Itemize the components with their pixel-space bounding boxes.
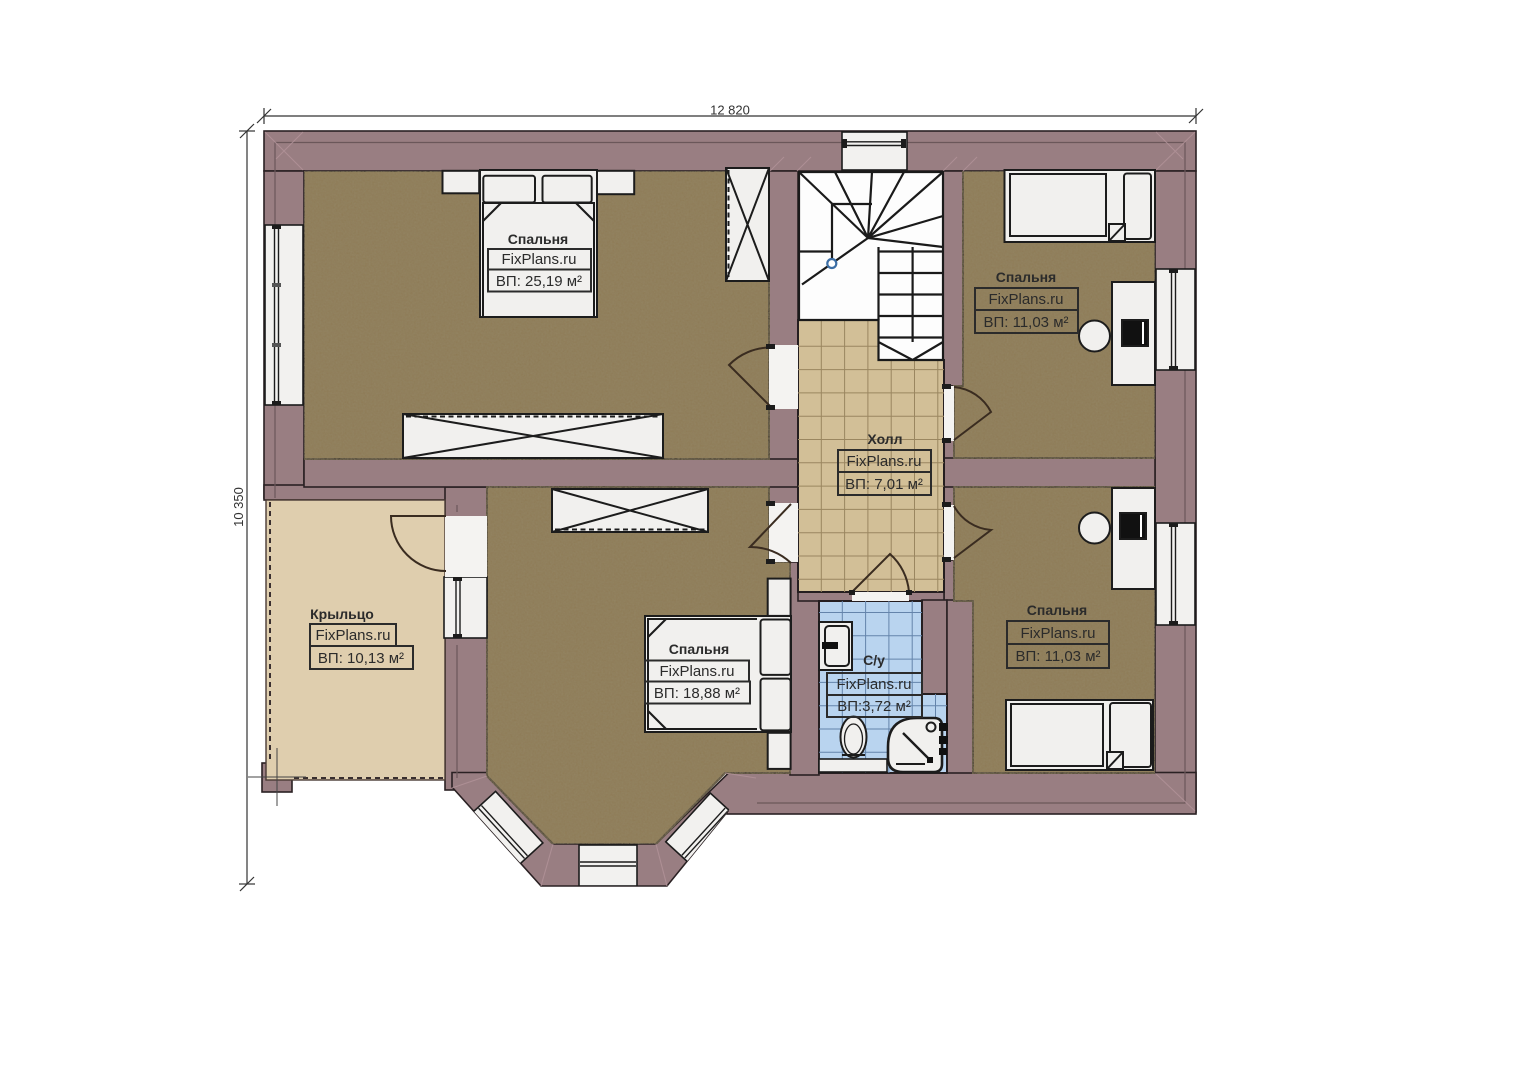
svg-text:ВП:3,72 м²: ВП:3,72 м² <box>837 698 911 715</box>
svg-text:Спальня: Спальня <box>1027 602 1087 618</box>
svg-text:FixPlans.ru: FixPlans.ru <box>836 676 911 693</box>
svg-text:ВП: 18,88 м²: ВП: 18,88 м² <box>654 685 740 702</box>
svg-text:10 350: 10 350 <box>231 487 246 527</box>
svg-text:ВП: 7,01 м²: ВП: 7,01 м² <box>845 476 923 493</box>
svg-text:Спальня: Спальня <box>669 641 729 657</box>
svg-text:ВП: 25,19 м²: ВП: 25,19 м² <box>496 273 582 290</box>
svg-text:FixPlans.ru: FixPlans.ru <box>846 453 921 470</box>
svg-text:ВП: 11,03 м²: ВП: 11,03 м² <box>1015 648 1100 665</box>
svg-text:FixPlans.ru: FixPlans.ru <box>501 251 576 268</box>
svg-text:Спальня: Спальня <box>508 231 568 247</box>
svg-text:FixPlans.ru: FixPlans.ru <box>1020 625 1095 642</box>
svg-text:Спальня: Спальня <box>996 269 1056 285</box>
svg-text:Холл: Холл <box>867 431 902 447</box>
svg-text:FixPlans.ru: FixPlans.ru <box>315 627 390 644</box>
svg-text:12 820: 12 820 <box>710 103 750 118</box>
svg-text:FixPlans.ru: FixPlans.ru <box>659 663 734 680</box>
svg-text:С/у: С/у <box>863 652 885 668</box>
svg-text:ВП: 10,13 м²: ВП: 10,13 м² <box>318 650 404 667</box>
svg-text:Крыльцо: Крыльцо <box>310 606 374 622</box>
svg-text:ВП: 11,03 м²: ВП: 11,03 м² <box>983 314 1068 331</box>
svg-text:FixPlans.ru: FixPlans.ru <box>988 291 1063 308</box>
